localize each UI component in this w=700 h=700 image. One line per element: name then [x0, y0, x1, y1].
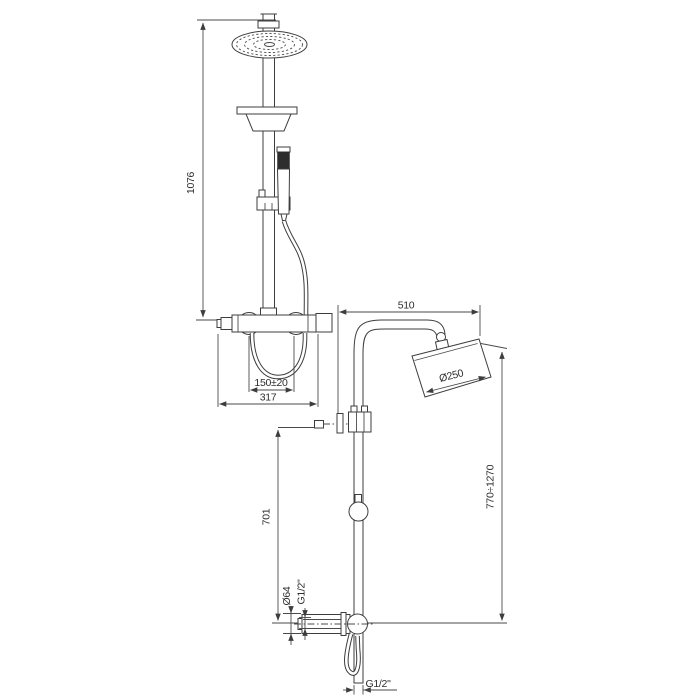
- slider-knob-side: [349, 495, 368, 522]
- overhead-shower-side: Ø250: [412, 339, 491, 397]
- dim-label-bracket-to-valve: 701: [261, 508, 273, 525]
- thermostatic-valve-side: [294, 613, 374, 636]
- valve-temp-handle: [316, 314, 332, 333]
- dim-label-inlet-spacing: 150±20: [254, 377, 288, 389]
- front-view: 1076: [185, 14, 332, 407]
- dim-label-bottom-connection: G1/2": [366, 678, 392, 690]
- dim-label-valve-diameter: Ø64: [281, 586, 293, 605]
- pipe-union: [237, 107, 297, 131]
- technical-drawing: 1076: [0, 0, 700, 700]
- dim-bottom-connection: G1/2": [343, 678, 397, 695]
- dim-height-range: 770÷1270: [481, 344, 507, 621]
- wall-bracket-side: [315, 406, 372, 433]
- hand-shower-cap: [277, 147, 290, 152]
- dim-label-reach: 510: [398, 300, 415, 312]
- shower-hose-front: [284, 221, 306, 315]
- bracket-wall-plate: [337, 414, 343, 434]
- bracket-screw: [315, 421, 324, 429]
- hand-shower-front: [277, 147, 290, 221]
- side-view: 510 Ø250: [261, 300, 508, 695]
- hand-shower-wand: [278, 169, 290, 214]
- drawing-svg: 1076: [0, 0, 700, 700]
- dim-label-valve-connection: G1/2": [296, 579, 308, 605]
- shower-arm-side: [354, 320, 449, 354]
- bracket-clamp: [349, 412, 372, 432]
- hand-shower-grip: [278, 152, 290, 169]
- dim-label-total-width: 317: [260, 392, 277, 404]
- holder-pin: [259, 190, 265, 197]
- hose-loop-front: [252, 333, 305, 377]
- valve-body: [232, 315, 316, 332]
- hose-loop-side: [346, 634, 358, 674]
- dim-label-overall-height: 1076: [185, 171, 197, 194]
- dim-label-height-range: 770÷1270: [485, 464, 497, 509]
- pipe-top-collar: [258, 21, 279, 28]
- thermostatic-valve-front: [217, 308, 332, 335]
- overhead-shower-front: [232, 31, 307, 58]
- dim-overall-height: 1076: [185, 20, 276, 320]
